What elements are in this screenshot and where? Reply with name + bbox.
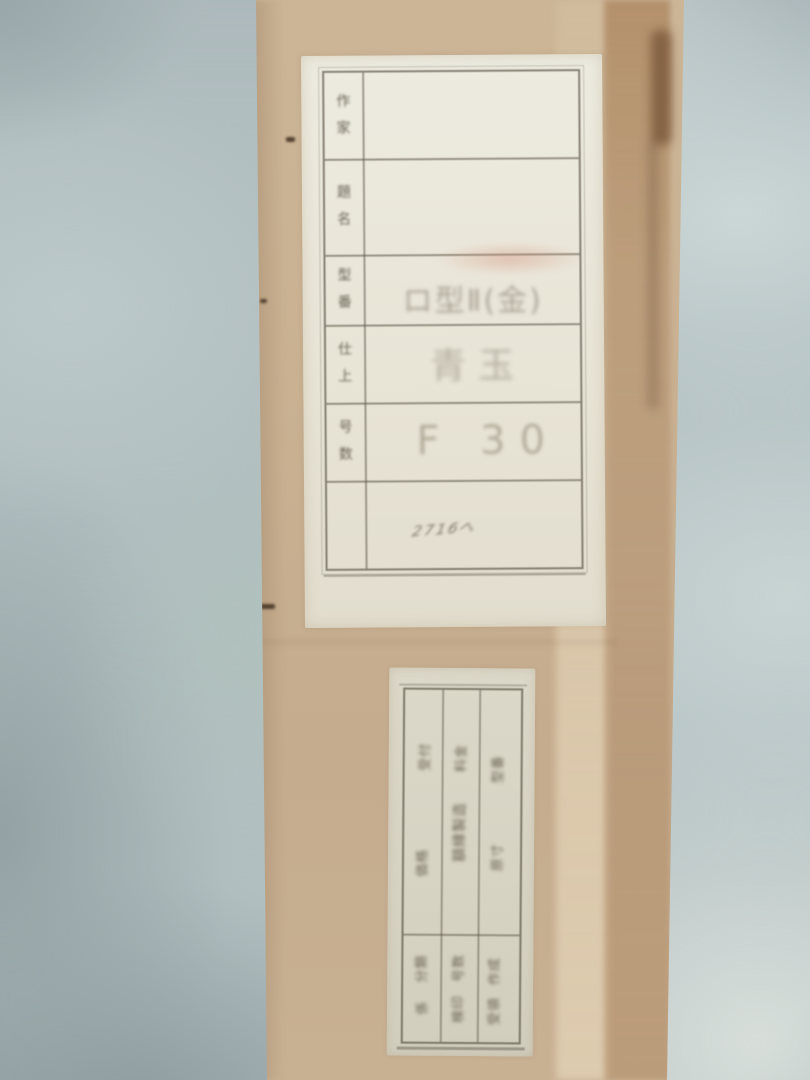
stamp-text: 価格 xyxy=(411,849,430,877)
stamp-text: 検印 xyxy=(447,995,466,1023)
stamp-text: 受付 xyxy=(414,743,433,771)
model-field-value-cell: ロ型Ⅱ(金) xyxy=(365,253,579,324)
model-field-value: ロ型Ⅱ(金) xyxy=(402,275,543,324)
stamp-text: 料金 xyxy=(450,744,469,772)
finish-field-label: 仕上 xyxy=(337,337,352,390)
handwritten-note: 2716ヘ xyxy=(409,516,482,542)
stamp-text: 分類 xyxy=(411,955,430,983)
artist-field-label: 作家 xyxy=(336,89,351,142)
finish-field-value-cell: 青玉 xyxy=(366,323,581,402)
photo-scene: 作家 題名 型番 ロ型Ⅱ(金) xyxy=(0,0,810,1080)
cardboard-horizontal-crease xyxy=(256,640,616,644)
title-field-label: 題名 xyxy=(336,180,351,233)
stamp-table: 受付 価格 料金 額縁製造 型番 原寸 分類 係 号数 検印 作成 受領 xyxy=(401,688,523,1045)
cardboard-edge-crease-lower xyxy=(648,140,658,410)
cardboard-speck xyxy=(286,137,295,142)
size-field-label-cell: 号数 xyxy=(326,403,367,481)
size-field-label: 号数 xyxy=(338,415,353,468)
red-ink-smudge xyxy=(435,241,585,276)
size-field-value: F 30 xyxy=(388,417,559,464)
row-artist: 作家 xyxy=(324,71,579,161)
stamp-text: 受領 xyxy=(483,997,502,1025)
stamp-column-divider xyxy=(477,690,481,1042)
stamp-column-divider xyxy=(440,690,444,1042)
label-table: 作家 題名 型番 ロ型Ⅱ(金) xyxy=(322,69,583,571)
stamp-text: 型番 xyxy=(487,755,506,783)
finish-field-label-cell: 仕上 xyxy=(326,325,367,403)
finish-field-value: 青玉 xyxy=(420,336,526,389)
row-footer: 2716ヘ xyxy=(327,479,582,569)
artist-field-label-cell: 作家 xyxy=(324,73,365,159)
stamp-text: 原寸 xyxy=(486,843,505,871)
stamp-text: 作成 xyxy=(484,957,503,985)
model-field-label: 型番 xyxy=(337,263,352,316)
title-field-value xyxy=(365,157,580,254)
footer-value-cell: 2716ヘ xyxy=(367,479,582,568)
size-field-value-cell: F 30 xyxy=(366,401,581,480)
stamp-paper-label: 受付 価格 料金 額縁製造 型番 原寸 分類 係 号数 検印 作成 受領 xyxy=(387,667,536,1056)
model-field-label-cell: 型番 xyxy=(325,255,365,325)
cardboard-edge-crease xyxy=(651,30,671,145)
title-field-label-cell: 題名 xyxy=(325,159,366,255)
main-paper-label: 作家 題名 型番 ロ型Ⅱ(金) xyxy=(301,54,606,628)
row-finish: 仕上 青玉 xyxy=(326,323,581,405)
cardboard-speck xyxy=(260,299,267,303)
stamp-text: 額縁製造 xyxy=(449,802,469,862)
cardboard-dark-band xyxy=(604,0,670,1080)
row-size: 号数 F 30 xyxy=(326,401,581,483)
artist-field-value xyxy=(364,71,579,158)
stamp-row-divider xyxy=(403,934,519,937)
footer-label-cell xyxy=(327,481,368,569)
stamp-text: 係 xyxy=(411,1001,430,1015)
stamp-text: 号数 xyxy=(448,954,467,982)
row-model: 型番 ロ型Ⅱ(金) xyxy=(325,253,579,327)
